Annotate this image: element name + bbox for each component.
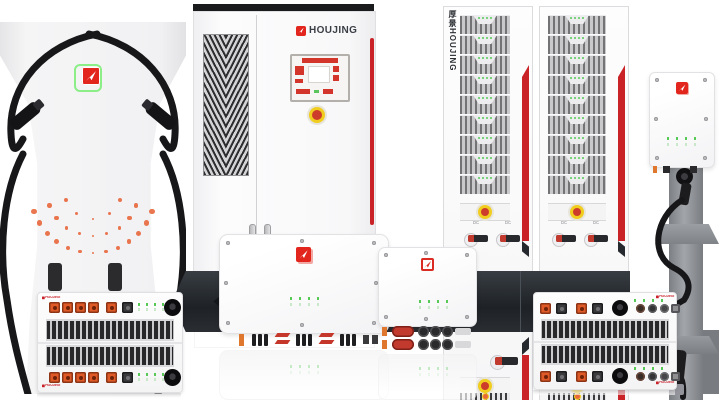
screen-tile xyxy=(333,75,339,81)
red-busbar xyxy=(275,333,291,337)
dc-switch: DC xyxy=(550,221,578,251)
orange-dot xyxy=(78,232,81,235)
orange-connector xyxy=(540,371,551,382)
orange-dot xyxy=(45,231,50,236)
status-led xyxy=(428,373,430,376)
status-led xyxy=(138,373,140,376)
status-led xyxy=(685,137,687,140)
emergency-stop-button xyxy=(573,208,581,216)
screw-icon xyxy=(384,253,388,257)
module-notch xyxy=(473,15,497,24)
houjing-logo xyxy=(296,247,311,262)
module-led xyxy=(482,77,484,79)
terminal-fin xyxy=(258,334,262,346)
terminal-fin xyxy=(340,334,344,346)
module-led xyxy=(578,157,580,159)
orange-dot xyxy=(108,212,111,215)
vent-grille xyxy=(541,319,669,340)
module-led xyxy=(490,37,492,39)
rack-module xyxy=(548,35,606,54)
module-led xyxy=(570,177,572,179)
orange-connector xyxy=(49,302,60,313)
module-slot-stack xyxy=(460,15,510,195)
vent-grille xyxy=(46,319,174,341)
black-round-connector xyxy=(430,326,441,337)
red-accent-stripe xyxy=(522,355,529,400)
module-led xyxy=(582,157,584,159)
module-led xyxy=(574,77,576,79)
module-led xyxy=(582,57,584,59)
terminal-fin xyxy=(296,334,300,346)
status-led xyxy=(138,378,140,381)
module-led xyxy=(490,137,492,139)
module-led xyxy=(482,37,484,39)
dc-switch: DC xyxy=(494,221,522,251)
led-dot-arcs xyxy=(8,128,178,238)
status-led xyxy=(667,143,669,146)
wallbox-reflection xyxy=(378,354,477,400)
module-notch xyxy=(473,35,497,44)
screw-icon xyxy=(703,78,707,82)
dc-switch-label: DC xyxy=(466,221,486,225)
module-led xyxy=(574,157,576,159)
orange-connector xyxy=(540,303,551,314)
estop-panel xyxy=(460,203,510,221)
vent-grille xyxy=(46,345,174,367)
orange-dot xyxy=(118,226,122,230)
module-led xyxy=(570,37,572,39)
screw-icon xyxy=(300,323,304,327)
rack-power-module-unit: HOUJINGHOUJING xyxy=(37,292,183,393)
module-led xyxy=(478,37,480,39)
module-led xyxy=(578,117,580,119)
module-brand-text: HOUJING xyxy=(45,384,60,387)
knob-icon xyxy=(612,368,628,384)
screen-logo-block xyxy=(295,66,304,75)
houjing-logo-ring xyxy=(74,64,102,92)
dc-switch-label: DC xyxy=(554,221,574,225)
module-led xyxy=(486,17,488,19)
status-led xyxy=(419,306,421,309)
emergency-stop-button xyxy=(481,208,489,216)
cable-anchor-right xyxy=(108,263,122,291)
orange-terminal xyxy=(382,327,387,336)
module-led xyxy=(574,177,576,179)
cabinet-top-cap xyxy=(193,4,374,11)
screen-bottom-bar xyxy=(323,89,333,94)
wallbox-tab xyxy=(690,166,697,173)
grille-left-half xyxy=(204,35,226,175)
module-led xyxy=(582,37,584,39)
module-led xyxy=(574,37,576,39)
stripe-chevron xyxy=(618,241,625,257)
module-led xyxy=(578,57,580,59)
module-notch xyxy=(565,35,589,44)
screw-icon xyxy=(226,321,230,325)
orange-dot xyxy=(144,220,150,226)
module-led xyxy=(482,17,484,19)
module-led xyxy=(570,157,572,159)
status-led xyxy=(446,300,448,303)
rack-brand-vertical: 厚景HOUJING xyxy=(446,10,458,160)
orange-dot xyxy=(136,231,141,236)
status-led xyxy=(299,371,301,374)
status-leds xyxy=(667,137,697,147)
status-led xyxy=(308,297,310,300)
screw-icon xyxy=(465,315,469,319)
switch-lever-red xyxy=(556,235,562,242)
module-led xyxy=(582,137,584,139)
module-notch xyxy=(565,55,589,64)
orange-connector xyxy=(62,302,73,313)
orange-dot xyxy=(134,203,139,208)
module-led xyxy=(478,117,480,119)
status-led xyxy=(676,137,678,140)
rack-module xyxy=(460,155,510,174)
module-notch xyxy=(565,15,589,24)
screw-icon xyxy=(224,281,228,285)
wallbox-reflection xyxy=(219,350,389,400)
touchscreen xyxy=(290,54,350,102)
status-led xyxy=(643,367,645,370)
rack-module xyxy=(548,15,606,34)
status-led xyxy=(299,297,301,300)
module-led xyxy=(490,17,492,19)
module-led xyxy=(570,17,572,19)
screw-icon xyxy=(703,156,707,160)
terminal-fin xyxy=(302,334,306,346)
terminal-fin xyxy=(308,334,312,346)
orange-connector xyxy=(49,372,60,383)
fan-icon xyxy=(164,369,181,386)
status-led xyxy=(308,365,310,368)
wallbox-tab xyxy=(663,166,670,173)
module-led xyxy=(570,77,572,79)
module-led xyxy=(478,177,480,179)
module-led xyxy=(582,77,584,79)
module-led xyxy=(486,137,488,139)
orange-dot xyxy=(37,220,43,226)
screw-icon xyxy=(226,241,230,245)
rack-module xyxy=(548,115,606,134)
orange-dot xyxy=(92,218,94,220)
ventilation-grille xyxy=(203,34,249,176)
module-notch xyxy=(473,175,497,184)
status-led xyxy=(428,306,430,309)
rack-power-module-unit: HOUJINGHOUJING xyxy=(533,292,677,390)
reflected-leds xyxy=(419,367,449,377)
status-led xyxy=(290,371,292,374)
module-led xyxy=(486,97,488,99)
orange-connector xyxy=(106,372,117,383)
black-round-connector xyxy=(430,339,441,350)
module-notch xyxy=(473,95,497,104)
emergency-stop-button xyxy=(481,382,489,390)
black-round-connector xyxy=(418,339,429,350)
orange-connector xyxy=(88,302,99,313)
wall-inverter-box xyxy=(219,234,389,334)
status-led xyxy=(437,367,439,370)
screen-header xyxy=(302,58,338,63)
status-led xyxy=(154,378,156,381)
module-led xyxy=(482,97,484,99)
module-led xyxy=(574,57,576,59)
status-led xyxy=(308,303,310,306)
orange-terminal xyxy=(382,340,387,349)
orange-connector xyxy=(576,303,587,314)
module-notch xyxy=(565,115,589,124)
orange-dot xyxy=(66,246,70,250)
status-led xyxy=(428,300,430,303)
status-led xyxy=(146,378,148,381)
round-connector xyxy=(636,304,645,313)
status-led xyxy=(667,137,669,140)
knob-icon xyxy=(612,300,628,316)
orange-connector xyxy=(75,372,86,383)
black-connector xyxy=(592,371,603,382)
screw-icon xyxy=(300,239,304,243)
stripe-chevron xyxy=(522,337,529,355)
rack-module xyxy=(548,75,606,94)
module-led xyxy=(582,17,584,19)
status-led xyxy=(446,367,448,370)
module-led xyxy=(486,157,488,159)
status-led xyxy=(154,373,156,376)
screw-icon xyxy=(704,117,708,121)
houjing-logo xyxy=(82,67,100,85)
terminal-fin xyxy=(346,334,350,346)
module-brand-text: HOUJING xyxy=(45,296,60,299)
screen-button xyxy=(295,79,303,83)
rack-module xyxy=(548,155,606,174)
status-led xyxy=(634,367,636,370)
arrow-icon xyxy=(298,27,304,33)
rack-module xyxy=(460,135,510,154)
module-led xyxy=(574,117,576,119)
module-led xyxy=(482,177,484,179)
module-brand-text: HOUJING xyxy=(659,295,674,298)
status-led xyxy=(290,365,292,368)
orange-dot xyxy=(116,246,120,250)
status-leds xyxy=(419,300,449,310)
vent-grille xyxy=(541,344,669,365)
orange-dot xyxy=(75,212,78,215)
module-led xyxy=(482,117,484,119)
screen-ok-chip xyxy=(314,90,319,93)
red-connector xyxy=(392,339,414,350)
dc-switch-label: DC xyxy=(586,221,606,225)
module-led xyxy=(490,57,492,59)
module-led xyxy=(478,137,480,139)
red-connector xyxy=(392,326,414,337)
status-led xyxy=(428,367,430,370)
round-connector xyxy=(648,372,657,381)
terminal-fin xyxy=(252,334,256,346)
module-led xyxy=(570,117,572,119)
estop-panel xyxy=(548,203,606,221)
orange-connector xyxy=(576,371,587,382)
module-notch xyxy=(473,135,497,144)
fan-icon xyxy=(164,299,181,316)
houjing-logo-outline xyxy=(421,258,434,271)
module-led xyxy=(574,137,576,139)
orange-dot xyxy=(64,198,68,202)
stripe-chevron xyxy=(522,241,529,257)
red-accent-stripe xyxy=(618,65,625,241)
cabinet-brand: HOUJING xyxy=(296,25,357,36)
module-led xyxy=(478,77,480,79)
status-led xyxy=(154,308,156,311)
rack-module xyxy=(460,75,510,94)
status-led xyxy=(694,137,696,140)
module-led xyxy=(478,97,480,99)
rack-module xyxy=(460,55,510,74)
rack-module xyxy=(460,95,510,114)
terminal-stub xyxy=(455,328,471,335)
module-led xyxy=(570,97,572,99)
status-led xyxy=(661,299,663,302)
module-led xyxy=(486,117,488,119)
status-led xyxy=(437,373,439,376)
module-led xyxy=(582,177,584,179)
status-led xyxy=(694,143,696,146)
module-led xyxy=(482,57,484,59)
module-notch xyxy=(565,155,589,164)
orange-connector xyxy=(106,302,117,313)
status-led xyxy=(146,308,148,311)
module-brand-label: HOUJING xyxy=(42,384,60,387)
status-led xyxy=(317,365,319,368)
orange-dot xyxy=(127,216,131,220)
status-led xyxy=(308,371,310,374)
red-accent-stripe xyxy=(370,38,374,225)
orange-dot xyxy=(65,226,69,230)
round-connector xyxy=(648,304,657,313)
arrow-icon xyxy=(85,70,96,81)
module-brand-label: HOUJING xyxy=(656,381,674,384)
unit-divider xyxy=(534,341,676,343)
status-led xyxy=(634,299,636,302)
orange-dot xyxy=(105,232,108,235)
module-led xyxy=(578,97,580,99)
houjing-logo xyxy=(676,82,688,94)
round-connector xyxy=(660,372,669,381)
module-led xyxy=(490,157,492,159)
module-led xyxy=(582,117,584,119)
product-showcase: HOUJING 厚景HOUJING DCDC DCDC xyxy=(0,0,719,400)
black-connector xyxy=(122,302,133,313)
status-led xyxy=(652,299,654,302)
orange-connector xyxy=(75,302,86,313)
screw-icon xyxy=(424,317,428,321)
status-led xyxy=(317,371,319,374)
status-led xyxy=(317,303,319,306)
screw-icon xyxy=(384,315,388,319)
round-connector xyxy=(636,372,645,381)
module-led xyxy=(486,77,488,79)
status-led xyxy=(138,303,140,306)
status-led xyxy=(419,373,421,376)
switch-lever-red xyxy=(588,235,594,242)
terminal-block xyxy=(363,335,369,344)
band-seam xyxy=(520,271,521,332)
status-led xyxy=(146,373,148,376)
status-led xyxy=(643,299,645,302)
module-notch xyxy=(473,155,497,164)
emergency-stop-button xyxy=(312,110,322,120)
reflected-leds xyxy=(290,365,324,375)
status-led xyxy=(437,300,439,303)
terminal-strip xyxy=(219,333,387,347)
module-led xyxy=(490,177,492,179)
unit-divider xyxy=(38,342,182,344)
red-busbar xyxy=(319,340,335,344)
module-reflection xyxy=(37,393,181,398)
switch-lever-red xyxy=(468,235,474,242)
module-led xyxy=(478,17,480,19)
black-connector xyxy=(556,371,567,382)
status-led xyxy=(317,297,319,300)
status-led xyxy=(138,308,140,311)
rack-module xyxy=(460,15,510,34)
orange-connector xyxy=(62,372,73,383)
module-notch xyxy=(565,175,589,184)
black-connector xyxy=(556,303,567,314)
status-led xyxy=(419,367,421,370)
cable-anchor-left xyxy=(48,263,62,291)
module-led xyxy=(486,177,488,179)
arrow-icon xyxy=(423,260,431,268)
module-notch xyxy=(565,75,589,84)
module-led xyxy=(490,97,492,99)
status-led xyxy=(661,367,663,370)
orange-dot xyxy=(149,209,155,215)
black-connector xyxy=(592,303,603,314)
status-led xyxy=(419,300,421,303)
module-led xyxy=(578,17,580,19)
orange-dot xyxy=(47,203,52,208)
module-led xyxy=(490,77,492,79)
wallbox-tab xyxy=(653,166,657,173)
terminal-stub xyxy=(455,341,471,348)
orange-dot xyxy=(31,209,37,215)
module-slot-stack xyxy=(548,15,606,195)
black-round-connector xyxy=(442,339,453,350)
rack-module xyxy=(548,55,606,74)
module-led xyxy=(578,177,580,179)
switch-lever-red xyxy=(500,235,506,242)
rack-module xyxy=(460,35,510,54)
module-led xyxy=(578,77,580,79)
status-led xyxy=(299,365,301,368)
status-led xyxy=(437,306,439,309)
orange-terminal xyxy=(239,334,244,346)
status-led xyxy=(299,303,301,306)
red-busbar xyxy=(319,333,335,337)
screen-bottom-bar xyxy=(296,89,310,94)
houjing-logo xyxy=(296,26,306,36)
status-led xyxy=(676,143,678,146)
screw-icon xyxy=(465,253,469,257)
module-led xyxy=(578,137,580,139)
orange-dot xyxy=(92,235,94,237)
status-led xyxy=(290,303,292,306)
module-brand-label: HOUJING xyxy=(656,295,674,298)
module-led xyxy=(582,97,584,99)
module-brand-text: HOUJING xyxy=(659,381,674,384)
silver-connector xyxy=(671,372,680,381)
module-led xyxy=(478,157,480,159)
